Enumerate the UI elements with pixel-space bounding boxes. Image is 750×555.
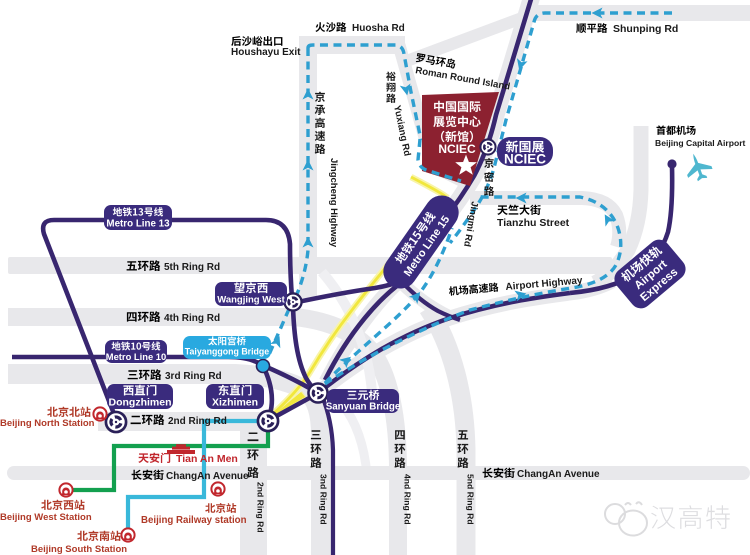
svg-text:5th Ring Rd: 5th Ring Rd — [164, 262, 220, 273]
svg-text:Beijing North Station: Beijing North Station — [0, 418, 95, 429]
svg-text:Tianzhu Street: Tianzhu Street — [497, 217, 570, 229]
svg-text:Jingcheng Highway: Jingcheng Highway — [328, 158, 339, 248]
svg-text:ChangAn Avenue: ChangAn Avenue — [166, 471, 249, 482]
svg-text:Xizhimen: Xizhimen — [212, 397, 258, 409]
svg-text:Shunping Rd: Shunping Rd — [613, 23, 678, 35]
svg-text:ChangAn Avenue: ChangAn Avenue — [517, 469, 600, 480]
svg-text:NCIEC: NCIEC — [438, 142, 476, 156]
svg-text:Houshayu Exit: Houshayu Exit — [231, 47, 301, 58]
svg-text:Beijing Capital Airport: Beijing Capital Airport — [655, 138, 746, 148]
svg-text:Sanyuan Bridge: Sanyuan Bridge — [326, 402, 401, 413]
svg-text:3nd Ring Rd: 3nd Ring Rd — [319, 474, 329, 525]
svg-text:Metro Line 13: Metro Line 13 — [106, 219, 170, 230]
svg-text:Huosha Rd: Huosha Rd — [352, 23, 405, 34]
svg-text:Tian An Men: Tian An Men — [176, 453, 238, 465]
svg-text:4th Ring Rd: 4th Ring Rd — [164, 313, 220, 324]
svg-text:5nd Ring Rd: 5nd Ring Rd — [466, 474, 476, 525]
svg-text:2nd Ring Rd: 2nd Ring Rd — [256, 482, 266, 533]
svg-text:Beijing South Station: Beijing South Station — [31, 544, 127, 555]
svg-text:Metro Line 10: Metro Line 10 — [106, 351, 166, 362]
svg-text:Dongzhimen: Dongzhimen — [109, 397, 172, 409]
svg-text:NCIEC: NCIEC — [504, 152, 546, 167]
svg-text:2nd Ring Rd: 2nd Ring Rd — [168, 416, 227, 427]
svg-text:Beijing Railway station: Beijing Railway station — [141, 515, 247, 526]
svg-text:Beijing West Station: Beijing West Station — [0, 512, 92, 523]
svg-text:Taiyanggong Bridge: Taiyanggong Bridge — [185, 347, 269, 357]
svg-text:4nd Ring Rd: 4nd Ring Rd — [403, 474, 413, 525]
svg-text:3rd Ring Rd: 3rd Ring Rd — [165, 371, 222, 382]
svg-text:Wangjing West: Wangjing West — [217, 295, 285, 306]
